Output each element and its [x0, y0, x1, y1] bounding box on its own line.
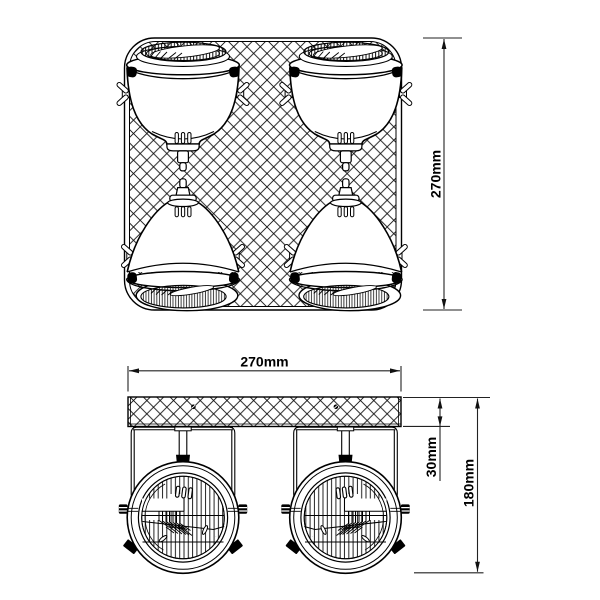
svg-text:30mm: 30mm: [423, 437, 439, 477]
svg-text:270mm: 270mm: [428, 150, 444, 198]
svg-text:180mm: 180mm: [461, 459, 477, 507]
svg-text:270mm: 270mm: [240, 354, 288, 370]
